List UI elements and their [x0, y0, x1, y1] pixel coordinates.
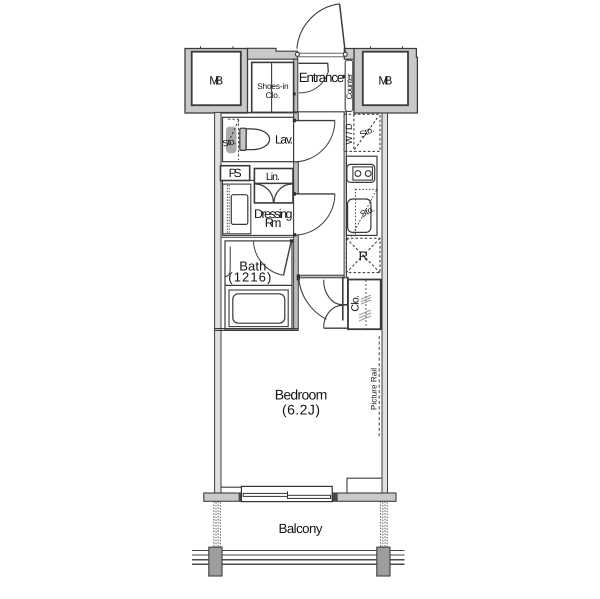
svg-text:Lav.: Lav. [275, 133, 293, 147]
svg-text:Clo.: Clo. [350, 295, 362, 312]
svg-text:Picture Rail: Picture Rail [369, 368, 378, 410]
svg-text:R: R [359, 249, 368, 264]
svg-text:Balcony: Balcony [279, 521, 323, 536]
svg-text:(1216): (1216) [228, 270, 271, 285]
svg-text:MB: MB [209, 74, 223, 88]
svg-text:Rm.: Rm. [265, 216, 282, 230]
svg-text:(6.2J): (6.2J) [282, 401, 320, 417]
svg-text:Clo.: Clo. [266, 90, 281, 100]
svg-text:PS: PS [229, 166, 242, 180]
svg-text:W/D: W/D [344, 123, 354, 145]
svg-text:MB: MB [378, 74, 392, 88]
svg-text:Lin.: Lin. [266, 171, 280, 183]
svg-text:Bedroom: Bedroom [275, 386, 328, 402]
svg-text:Entrance: Entrance [299, 70, 345, 85]
svg-text:Counter: Counter [345, 73, 354, 99]
